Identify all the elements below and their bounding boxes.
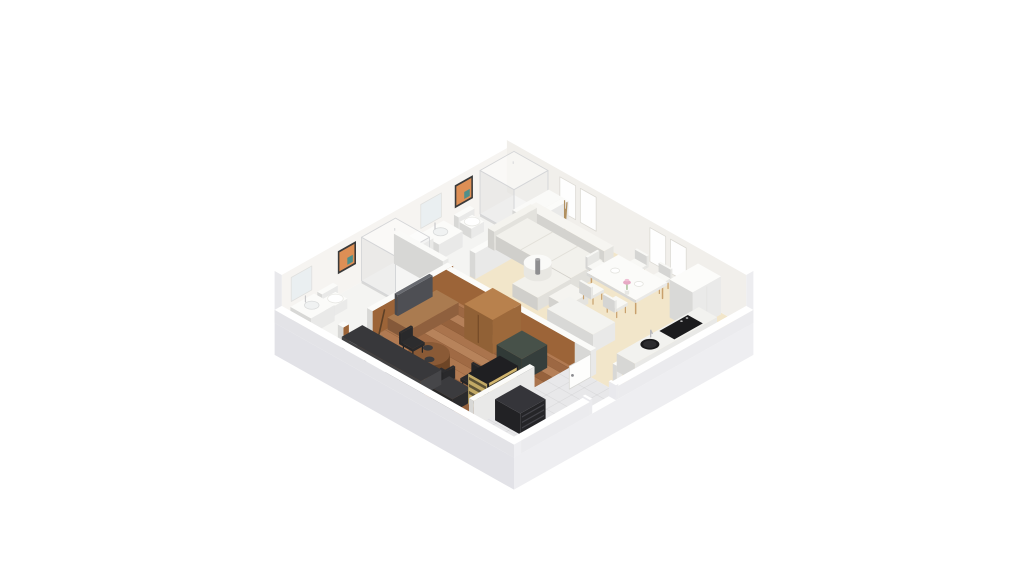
cooktop-knob-2 <box>680 320 683 322</box>
toilet-bathroom-1-seat <box>328 294 344 303</box>
floor-plan-3d-render <box>0 0 1024 576</box>
basin-bathroom-1 <box>304 301 319 309</box>
kitchen-sink-inner <box>643 340 656 348</box>
cooktop-knob-1 <box>686 317 689 319</box>
bowl-1 <box>423 345 433 351</box>
floor-plan-canvas <box>0 0 1024 576</box>
toilet-bathroom-2-seat <box>464 217 480 226</box>
coffee-table-item <box>535 258 540 275</box>
plate-1 <box>611 268 620 273</box>
hallway-door-handle <box>571 374 574 377</box>
wardrobe-door-seam <box>478 315 479 344</box>
plate-2 <box>634 281 643 286</box>
